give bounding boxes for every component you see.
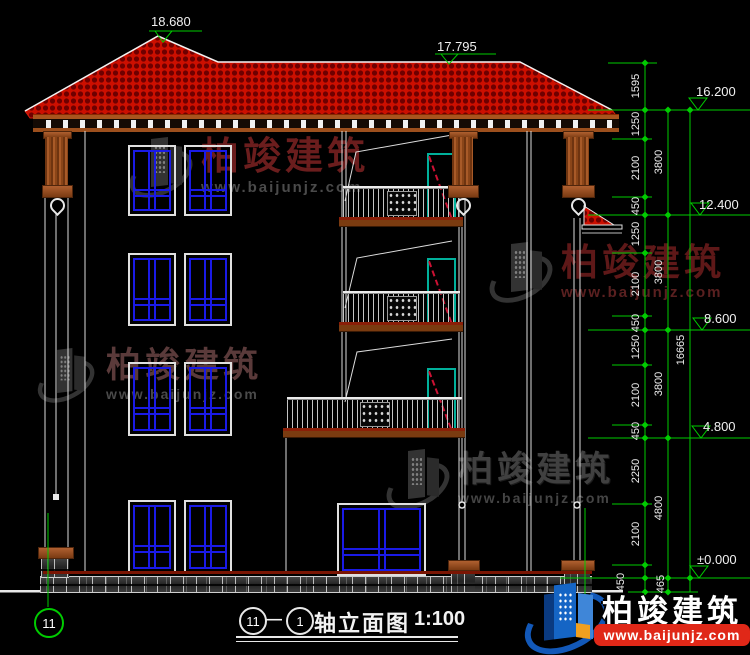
dim-floor-height: 3800 [653, 249, 665, 295]
title-axis-bubble-left: 11 [239, 607, 267, 635]
elevation-label-floor3: 8.600 [704, 311, 737, 326]
axis-bubble-11: 11 [34, 608, 64, 638]
elevation-label-floor2: 4.800 [703, 419, 736, 434]
title-underline-2 [236, 641, 458, 642]
dim-segment: 2100 [630, 511, 642, 557]
dim-segment: 2250 [630, 448, 642, 494]
elevation-label-floor4: 12.400 [699, 197, 739, 212]
dim-floor-height: 4800 [653, 485, 665, 531]
brand-url-badge: www.baijunjz.com [594, 624, 750, 646]
title-axis-bubble-right: 1 [286, 607, 314, 635]
title-underline [236, 636, 458, 638]
elevation-label-eave: 16.200 [696, 84, 736, 99]
dim-segment: 1250 [630, 324, 642, 370]
logo-building-icon [576, 623, 590, 639]
elevation-drawing-canvas: 柏竣建筑 www.baijunjz.com 柏竣建筑 www.baijunjz.… [0, 0, 750, 655]
logo-window-dots [558, 592, 572, 622]
elevation-label-ground: ±0.000 [697, 552, 737, 567]
logo-building-icon [544, 593, 554, 640]
elevation-label-secondary-ridge: 17.795 [437, 39, 477, 54]
dim-floor-height: 3800 [653, 361, 665, 407]
dim-total-height: 16665 [675, 327, 687, 373]
brand-logo: 柏竣建筑 www.baijunjz.com [518, 580, 750, 655]
dim-floor-height: 3800 [653, 139, 665, 185]
elevation-label-ridge: 18.680 [151, 14, 191, 29]
dim-segment: 1250 [630, 211, 642, 257]
dim-segment: 1250 [630, 101, 642, 147]
